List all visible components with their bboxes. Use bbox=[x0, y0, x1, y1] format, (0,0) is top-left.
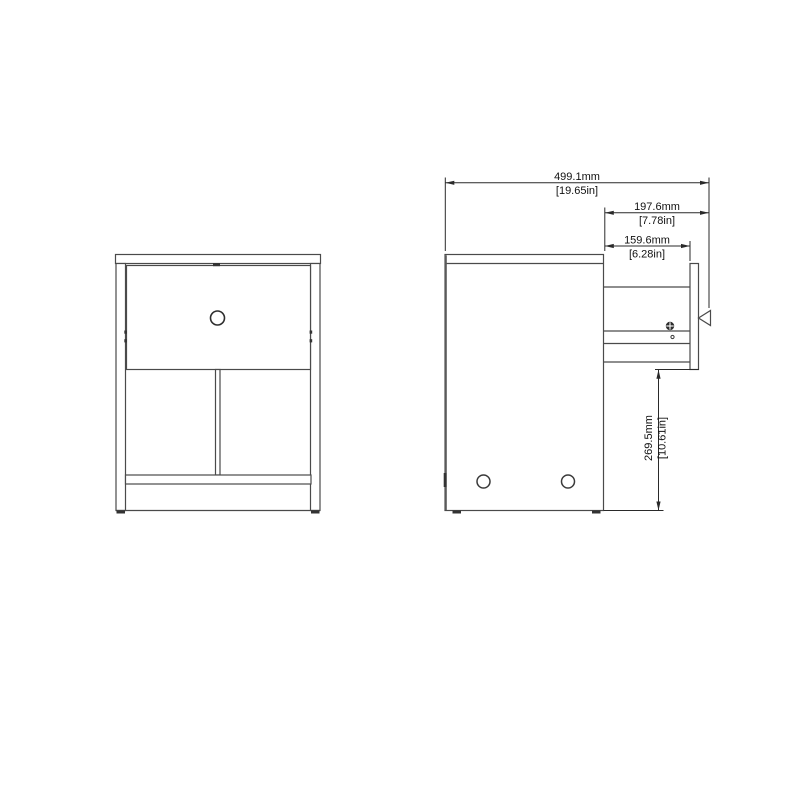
front-right-leg bbox=[311, 264, 321, 511]
front-right-foot bbox=[311, 511, 320, 514]
open-drawer-profile bbox=[604, 264, 711, 370]
dim-clearance-mm: 269.5mm bbox=[643, 415, 655, 461]
dimension-clearance-height: 269.5mm [10.61in] bbox=[604, 370, 699, 511]
cam-hole bbox=[562, 475, 575, 488]
front-view bbox=[116, 255, 321, 514]
front-shelf bbox=[126, 475, 312, 484]
technical-drawing-canvas: 499.1mm [19.65in] 197.6mm [7.78in] 159.6… bbox=[0, 0, 800, 800]
dim-overall-depth-in: [19.65in] bbox=[556, 185, 598, 197]
pilot-hole bbox=[671, 335, 674, 338]
front-center-divider bbox=[216, 370, 221, 476]
side-front-foot bbox=[592, 511, 601, 514]
round-knob-icon bbox=[211, 311, 225, 325]
dim-drawer-box-in: [6.28in] bbox=[629, 248, 665, 260]
back-panel-fitting-mark bbox=[444, 473, 447, 487]
dim-clearance-in: [10.61in] bbox=[657, 417, 669, 459]
dim-drawer-box-mm: 159.6mm bbox=[624, 234, 670, 246]
side-view bbox=[444, 255, 711, 514]
side-back-foot bbox=[453, 511, 462, 514]
slide-screw-mark bbox=[310, 339, 313, 342]
slide-screw-mark bbox=[124, 331, 127, 334]
front-left-foot bbox=[117, 511, 126, 514]
side-body bbox=[445, 255, 604, 511]
front-top-panel bbox=[116, 255, 321, 264]
drawer-top-notch bbox=[213, 263, 220, 266]
dim-drawer-extension-in: [7.78in] bbox=[639, 215, 675, 227]
dim-overall-depth-mm: 499.1mm bbox=[554, 171, 600, 183]
cam-hole bbox=[477, 475, 490, 488]
drawer-front-profile bbox=[690, 264, 699, 370]
slide-screw-mark bbox=[310, 331, 313, 334]
dimension-drawer-box: 159.6mm [6.28in] bbox=[605, 234, 690, 261]
knob-profile-icon bbox=[699, 311, 711, 326]
front-left-leg bbox=[116, 264, 126, 511]
slide-screw-mark bbox=[124, 339, 127, 342]
screw-head-icon bbox=[666, 322, 674, 330]
dim-drawer-extension-mm: 197.6mm bbox=[634, 201, 680, 213]
